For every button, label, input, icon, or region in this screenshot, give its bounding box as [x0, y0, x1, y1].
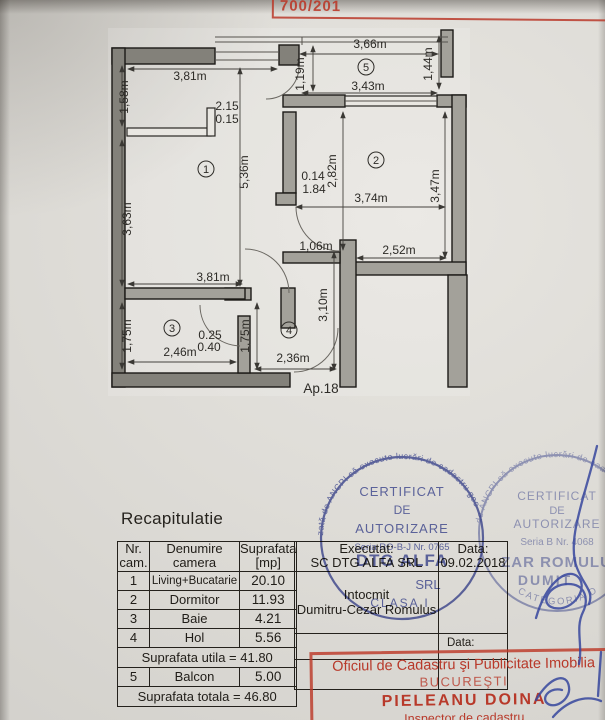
data-label: Data:	[457, 541, 488, 556]
cell-nr: 3	[118, 609, 150, 628]
dimension-label: 0.14	[301, 169, 325, 183]
room-number: 3	[169, 323, 175, 335]
wall	[112, 373, 290, 387]
dimension-label: 2,82m	[325, 154, 339, 187]
dimension-label: 1,58m	[117, 80, 131, 113]
cell-name: Balcon	[150, 667, 240, 686]
cell-area: 4.21	[240, 609, 297, 628]
dimension-label: 5,36m	[237, 155, 251, 188]
executat-cell: Executat: SC DTG ALFA SRL	[295, 542, 439, 572]
wall	[355, 262, 466, 275]
wall	[283, 95, 345, 107]
stamp-ring-text: de ANCPI să execute lucrări de cad	[474, 449, 605, 524]
dimension-label: 3,43m	[351, 79, 384, 93]
empty-cell	[439, 571, 508, 633]
dimension-label: 1,06m	[299, 239, 332, 253]
floor-plan: 3,66m 3,43m 1,44m 1,19m 3,81m 1,58m 2.15…	[0, 0, 605, 440]
cell-nr: 4	[118, 628, 150, 647]
cell-name: Dormitor	[150, 590, 240, 609]
cell-name: Hol	[150, 628, 240, 647]
dimension-label: 1,19m	[293, 57, 307, 90]
cell-name: Living+Bucatarie	[150, 571, 240, 590]
registration-number-stamp: 700/201	[272, 0, 605, 22]
svg-text:zată de ANCPI să execute lucră: zată de ANCPI să execute lucrări de cada…	[315, 451, 482, 536]
header-denumire: Denumire camera	[150, 542, 240, 572]
dimension-label: 3,10m	[316, 288, 330, 321]
subtotal: Suprafata utila = 41.80	[118, 647, 297, 667]
dimension-label: 2,46m	[163, 345, 196, 359]
room-number: 2	[373, 155, 379, 167]
header-suprafata: Suprafata [mp]	[240, 542, 297, 572]
header-nr: Nr. cam.	[118, 542, 150, 572]
svg-text:de ANCPI să execute lucrări de: de ANCPI să execute lucrări de cad	[474, 449, 605, 524]
intocmit-cell: Intocmit Dumitru-Cezar Romulus	[295, 571, 439, 633]
executat-label: Executat:	[339, 541, 393, 556]
subtotal-row: Suprafata utila = 41.80	[118, 647, 297, 667]
dimension-label: 3,47m	[428, 169, 442, 202]
intocmit-name: Dumitru-Cezar Romulus	[297, 602, 436, 617]
stamp-title: CERTIFICAT	[359, 484, 444, 499]
cell-area: 11.93	[240, 590, 297, 609]
dimension-label: 3,74m	[354, 191, 387, 205]
table-row: Intocmit Dumitru-Cezar Romulus	[295, 571, 508, 633]
dimension-label: 3,81m	[196, 270, 229, 284]
svg-text:CATEGORIA D: CATEGORIA D	[516, 584, 601, 607]
stamp-name: ZAR ROMULUS	[501, 554, 605, 571]
stamp-title: AUTORIZARE	[513, 517, 600, 531]
cell-area: 5.56	[240, 628, 297, 647]
dimension-label: 1,75m	[120, 319, 134, 352]
dimension-label: 0.15	[215, 112, 239, 126]
dimension-label: 2,52m	[382, 243, 415, 257]
stamp-serial: Seria B Nr. 4068	[520, 537, 594, 548]
cell-name: Baie	[150, 609, 240, 628]
cell-nr: 1	[118, 571, 150, 590]
dimension-label: 1,75m	[238, 319, 252, 352]
dimension-label: 3,63m	[120, 202, 134, 235]
executat-company: SC DTG ALFA SRL	[311, 555, 423, 570]
room-number: 5	[363, 62, 369, 74]
table-row: Executat: SC DTG ALFA SRL Data: 09.02.20…	[295, 542, 508, 572]
table-header-row: Nr. cam. Denumire camera Suprafata [mp]	[118, 542, 297, 572]
wall	[448, 275, 467, 387]
wall	[276, 193, 296, 205]
cell-nr: 5	[118, 667, 150, 686]
stamp-title: DE	[549, 505, 564, 517]
dimension-label: 2,36m	[276, 351, 309, 365]
partition	[207, 108, 215, 136]
ocpi-line2: BUCUREŞTI	[313, 672, 605, 691]
signature-stroke	[574, 446, 597, 604]
table-row: 2 Dormitor 11.93	[118, 590, 297, 609]
dimension-label: 1.84	[302, 182, 326, 196]
stamp-name: DUMIT	[518, 572, 572, 588]
total: Suprafata totala = 46.80	[118, 686, 297, 706]
partition	[127, 128, 211, 136]
dimension-label: 3,66m	[353, 37, 386, 51]
wall	[283, 252, 340, 263]
stamp-title: CERTIFICAT	[517, 489, 597, 503]
stamp-ring-text: zată de ANCPI să execute lucrări de cada…	[315, 451, 482, 536]
registration-number: 700/201	[280, 0, 605, 18]
room-number: 4	[286, 325, 292, 337]
dimension-label: 2.15	[215, 99, 239, 113]
wall	[283, 112, 296, 193]
table-row: 4 Hol 5.56	[118, 628, 297, 647]
cell-area: 5.00	[240, 667, 297, 686]
dimension-label: 0.40	[197, 340, 221, 354]
plan-background	[108, 28, 470, 396]
recap-title: Recapitulatie	[121, 509, 223, 529]
stamp-title: AUTORIZARE	[355, 521, 449, 536]
dimension-label: 1,44m	[421, 47, 435, 80]
wall	[452, 95, 466, 275]
table-row: 5 Balcon 5.00	[118, 667, 297, 686]
stamp-ring-bottom-text: CATEGORIA D	[516, 584, 601, 607]
total-row: Suprafata totala = 46.80	[118, 686, 297, 706]
intocmit-label: Intocmit	[344, 587, 390, 602]
table-row: 3 Baie 4.21	[118, 609, 297, 628]
wall	[112, 48, 215, 64]
wall	[340, 240, 356, 387]
scanned-cadastral-document: 700/201	[0, 0, 605, 720]
apartment-label: Ap.18	[303, 381, 338, 396]
stamp-title: DE	[394, 503, 411, 517]
ocpi-stamp: Oficiul de Cadastru şi Publicitate Imobi…	[309, 648, 605, 720]
room-number: 1	[203, 164, 209, 176]
table-row: 1 Living+Bucatarie 20.10	[118, 571, 297, 590]
recap-table: Nr. cam. Denumire camera Suprafata [mp] …	[117, 541, 297, 707]
dimension-label: 3,81m	[173, 69, 206, 83]
cell-nr: 2	[118, 590, 150, 609]
wall	[125, 288, 245, 299]
data-cell: Data: 09.02.2018	[439, 542, 508, 572]
cell-area: 20.10	[240, 571, 297, 590]
date-value: 09.02.2018	[440, 555, 505, 570]
